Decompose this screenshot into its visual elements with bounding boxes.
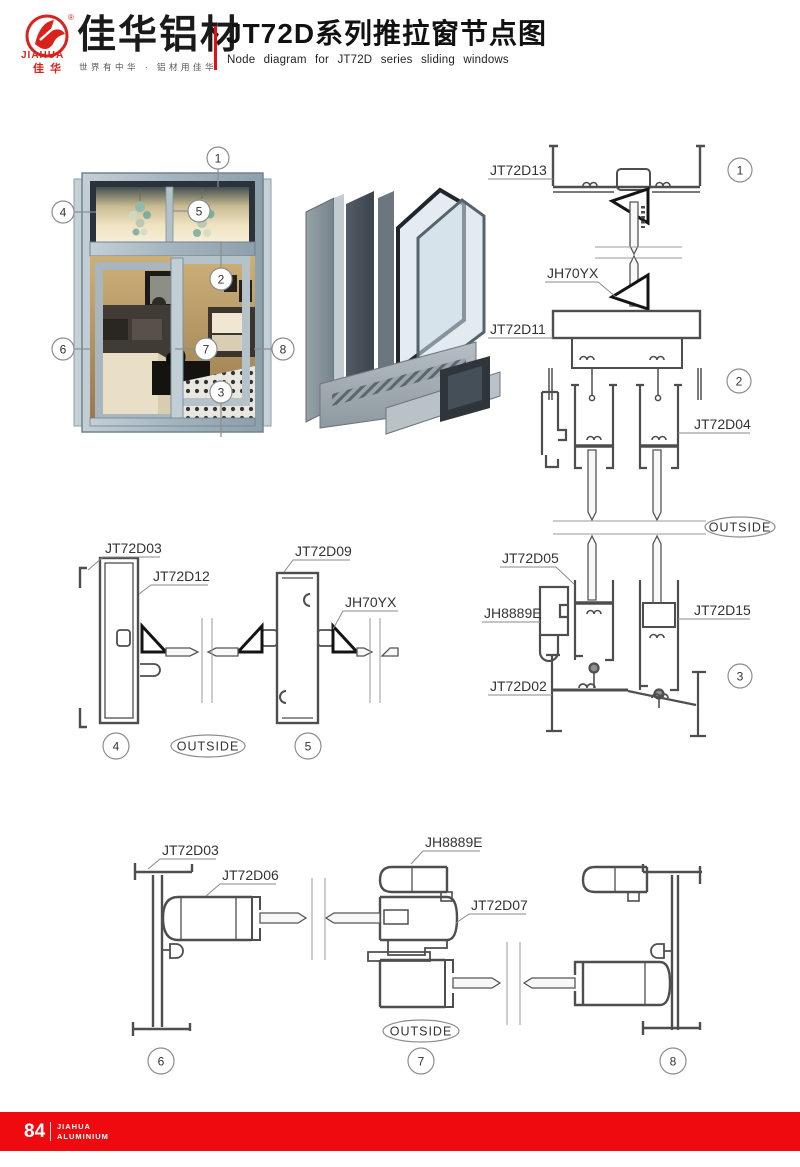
- part-label-jt72d03: JT72D03: [105, 540, 162, 556]
- footer-brand: JIAHUA ALUMINIUM: [57, 1122, 109, 1142]
- outside-label: OUTSIDE: [177, 740, 240, 754]
- footer-brand-line2: ALUMINIUM: [57, 1132, 109, 1142]
- jamb-section-drawing: JT72D03 JT72D12 JT72D09 JH70YX 4 OUTSIDE…: [80, 540, 398, 759]
- callout-2-section: 2: [736, 375, 743, 389]
- part-label-jt72d11: JT72D11: [490, 321, 546, 337]
- callout-1-section: 1: [737, 164, 744, 178]
- glazing-wedge-icon: [333, 626, 357, 652]
- vertical-section-drawing: JT72D13 JH70YX JT72D11 JT72D04 JT72D05 J…: [482, 146, 775, 736]
- part-label-jt72d05: JT72D05: [502, 550, 559, 566]
- outside-label: OUTSIDE: [390, 1025, 453, 1039]
- part-label-jt72d07: JT72D07: [471, 897, 528, 913]
- part-label-jt72d09: JT72D09: [295, 543, 352, 559]
- callout-5-section: 5: [305, 740, 312, 754]
- part-label-jh8889e: JH8889E: [425, 834, 483, 850]
- callout-7-section: 7: [418, 1055, 425, 1069]
- callout-8-section: 8: [670, 1055, 677, 1069]
- part-label-jt72d12: JT72D12: [153, 568, 210, 584]
- leader-lines: [148, 851, 526, 923]
- leader-lines: [88, 557, 398, 629]
- footer-brand-line1: JIAHUA: [57, 1122, 109, 1132]
- glazing-wedge-icon: [142, 626, 166, 652]
- part-label-jh70yx: JH70YX: [547, 265, 599, 281]
- outside-label: OUTSIDE: [709, 521, 772, 535]
- part-label-jt72d13: JT72D13: [490, 162, 547, 178]
- node-section-drawings: JT72D13 JH70YX JT72D11 JT72D04 JT72D05 J…: [0, 0, 800, 1167]
- part-label-jt72d15: JT72D15: [694, 602, 751, 618]
- part-label-jt72d03: JT72D03: [162, 842, 219, 858]
- part-label-jh70yx: JH70YX: [345, 594, 397, 610]
- part-label-jt72d02: JT72D02: [490, 678, 547, 694]
- part-label-jt72d04: JT72D04: [694, 416, 751, 432]
- glazing-wedge-icon: [238, 626, 262, 652]
- page-number: 84: [24, 1121, 45, 1143]
- footer-divider: [50, 1122, 51, 1141]
- horizontal-section-drawing: JT72D03 JT72D06 JH8889E JT72D07 OUTSIDE …: [133, 834, 702, 1074]
- part-label-jh8889e: JH8889E: [484, 605, 542, 621]
- part-label-jt72d06: JT72D06: [222, 867, 279, 883]
- callout-3-section: 3: [737, 670, 744, 684]
- callout-4-section: 4: [113, 740, 120, 754]
- catalog-page: ® JIAHUA 佳华 佳华铝材 世界有中华 · 铝材用佳华 JT72D系列推拉…: [0, 0, 800, 1167]
- page-footer: 84 JIAHUA ALUMINIUM: [0, 1112, 800, 1151]
- callout-6-section: 6: [158, 1055, 165, 1069]
